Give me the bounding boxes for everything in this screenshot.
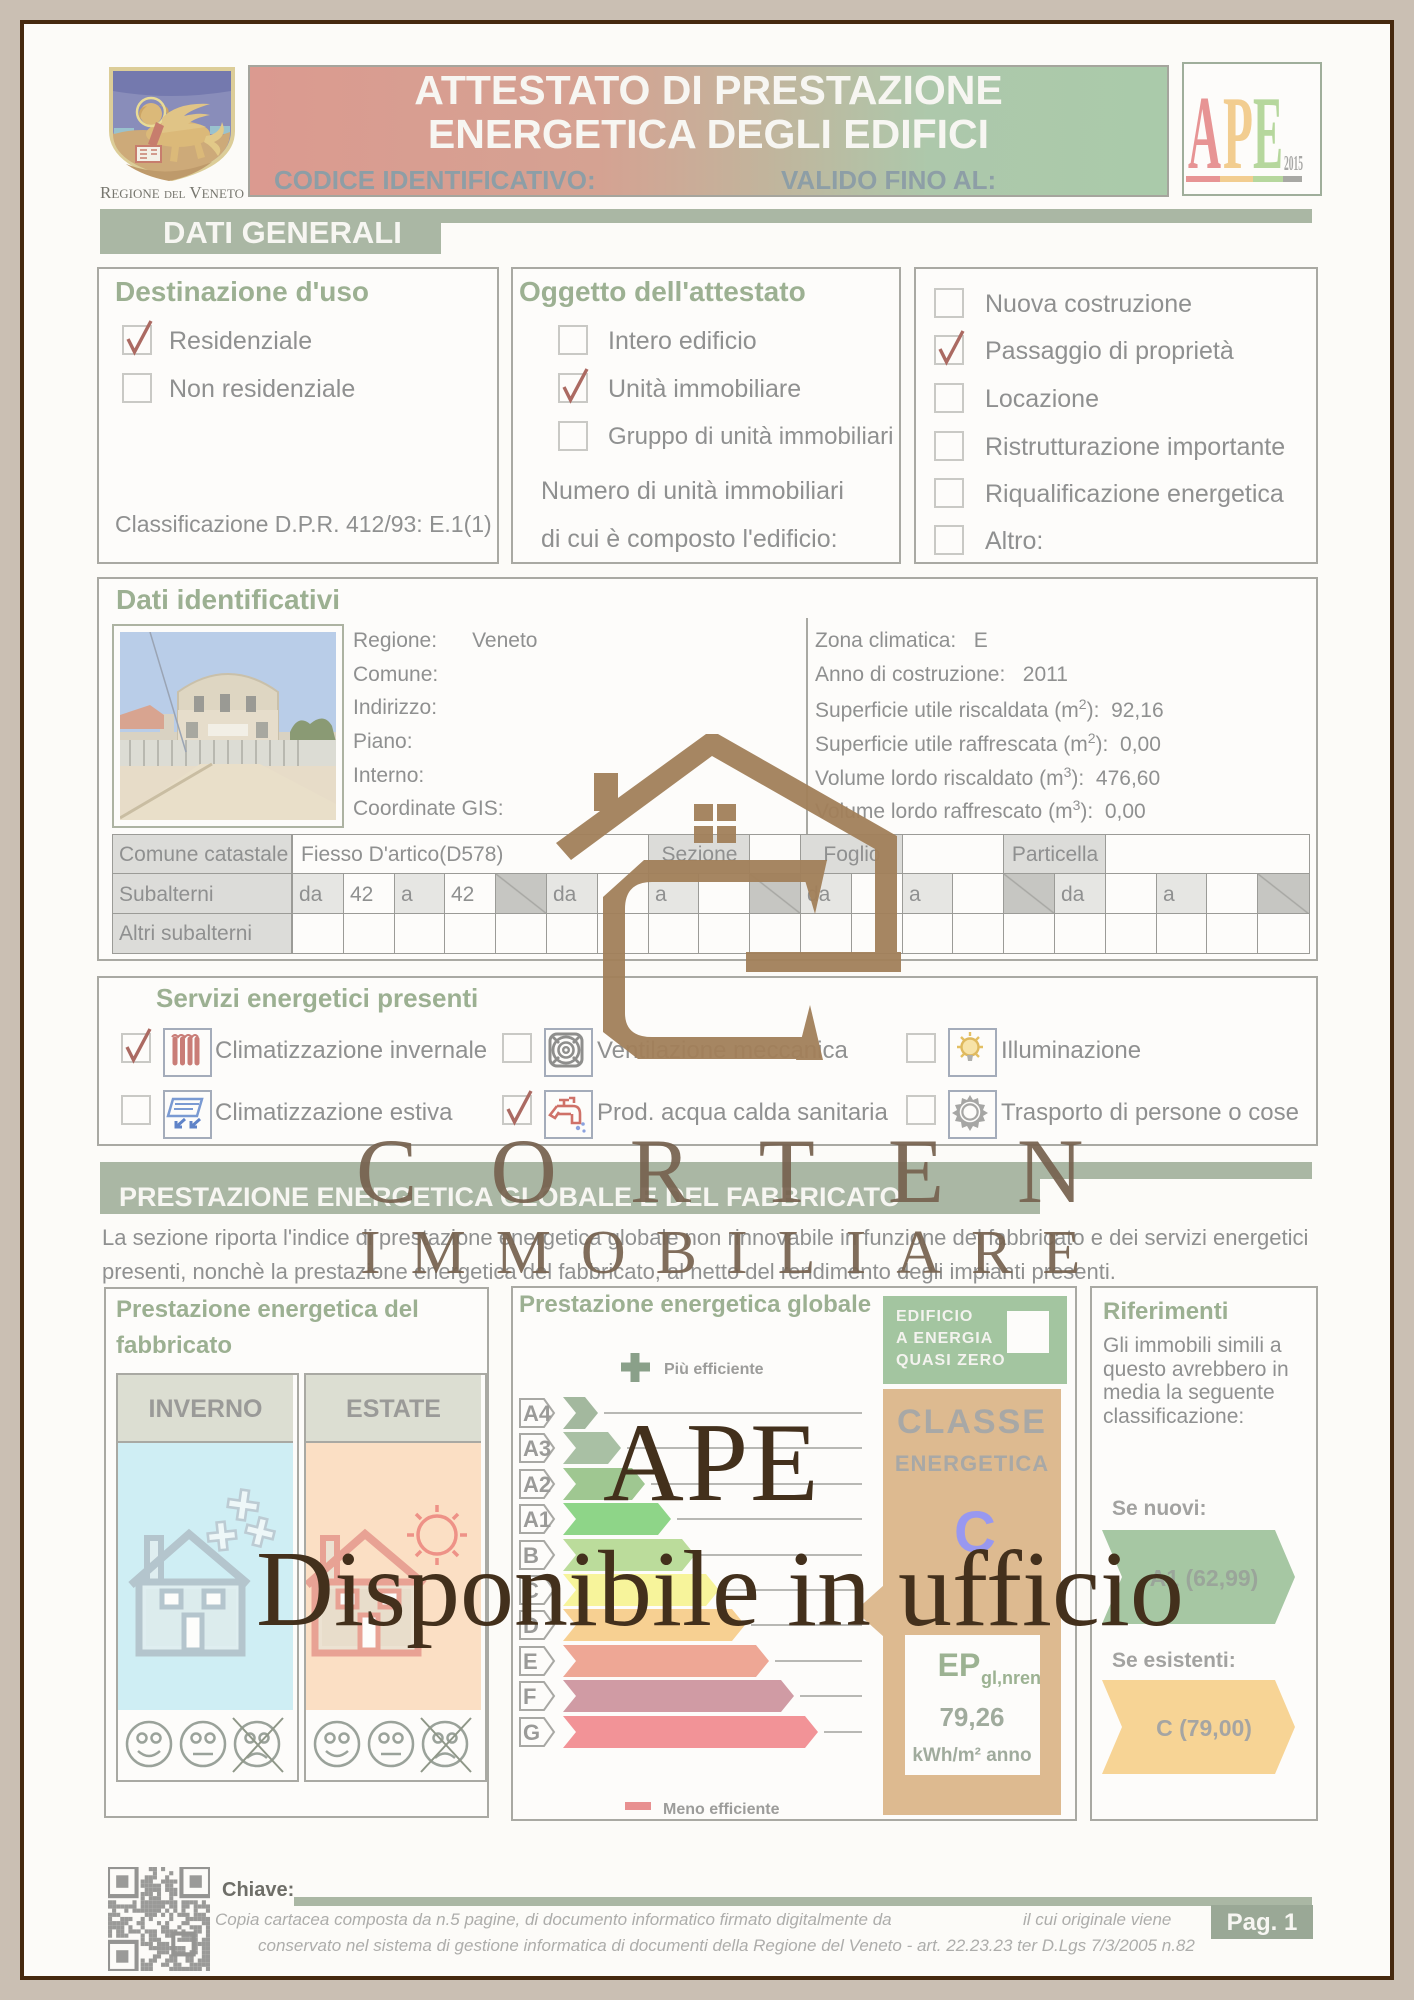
svg-text:ENERGETICA: ENERGETICA [895,1451,1049,1476]
svg-text:A ENERGIA: A ENERGIA [896,1330,993,1347]
svg-text:EP: EP [938,1647,981,1683]
svg-text:Più efficiente: Più efficiente [664,1361,764,1378]
svg-text:F: F [523,1684,536,1709]
svg-text:CLASSE: CLASSE [897,1403,1047,1441]
svg-text:A: A [1188,74,1221,191]
svg-text:P: P [1223,74,1253,191]
svg-text:Meno efficiente: Meno efficiente [663,1801,780,1817]
svg-text:E: E [523,1649,538,1674]
svg-text:EDIFICIO: EDIFICIO [896,1308,973,1325]
svg-text:E: E [1253,74,1283,191]
svg-text:2015: 2015 [1284,151,1303,175]
svg-text:79,26: 79,26 [939,1702,1004,1732]
svg-text:A2: A2 [523,1472,551,1497]
svg-text:A4: A4 [523,1401,552,1426]
svg-text:C (79,00): C (79,00) [1156,1715,1252,1741]
svg-text:kWh/m² anno: kWh/m² anno [912,1745,1031,1766]
svg-text:gl,nren: gl,nren [981,1668,1041,1688]
svg-text:G: G [523,1720,540,1745]
svg-text:QUASI ZERO: QUASI ZERO [896,1352,1006,1369]
svg-text:A3: A3 [523,1436,551,1461]
